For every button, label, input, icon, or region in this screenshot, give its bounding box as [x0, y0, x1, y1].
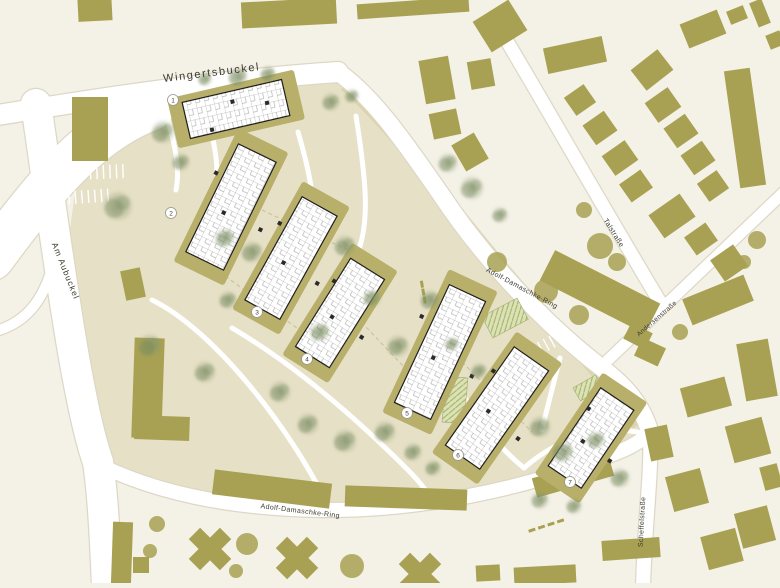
building-number: 3 — [255, 309, 259, 316]
olive-tree-4 — [587, 233, 613, 259]
tree-2 — [150, 119, 176, 145]
existing-building-43 — [111, 522, 133, 583]
existing-building-1 — [77, 0, 112, 22]
tree-26 — [459, 175, 485, 201]
building-badge-3: 3 — [252, 307, 263, 318]
tree-23 — [403, 442, 423, 462]
olive-tree-7 — [149, 516, 165, 532]
building-number: 4 — [305, 356, 309, 363]
building-badge-6: 6 — [453, 450, 464, 461]
existing-building-41 — [514, 564, 577, 583]
tree-7 — [344, 88, 360, 104]
tree-11 — [218, 290, 238, 310]
building-number: 1 — [171, 97, 175, 104]
existing-building-2 — [241, 0, 337, 28]
existing-building-44 — [133, 557, 149, 573]
building-badge-4: 4 — [302, 354, 313, 365]
tree-19 — [419, 289, 441, 311]
olive-tree-3 — [569, 305, 589, 325]
tree-22 — [373, 420, 397, 444]
tree-5 — [259, 65, 277, 83]
building-badge-7: 7 — [565, 477, 576, 488]
building-badge-2: 2 — [166, 208, 177, 219]
tree-30 — [586, 430, 606, 450]
olive-tree-11 — [340, 554, 364, 578]
tree-13 — [193, 360, 217, 384]
tree-18 — [386, 334, 410, 358]
existing-building-49 — [345, 485, 468, 510]
parking-stall — [88, 190, 89, 203]
tree-20 — [296, 412, 320, 436]
tree-35 — [470, 362, 488, 380]
tree-28 — [528, 415, 552, 439]
existing-building-47 — [134, 415, 190, 441]
parking-stall — [101, 189, 102, 202]
olive-tree-9 — [229, 564, 243, 578]
olive-tree-5 — [608, 253, 626, 271]
tree-34 — [444, 336, 460, 352]
building-number: 2 — [169, 210, 173, 217]
existing-building-11 — [467, 58, 495, 90]
parking-stall — [75, 191, 76, 204]
site-plan: WingertsbuckelAm AubuckelAdolf-Damaschke… — [0, 0, 780, 583]
tree-15 — [309, 321, 331, 343]
tree-27 — [491, 206, 509, 224]
tree-17 — [362, 288, 382, 308]
parking-stall — [69, 191, 70, 204]
tree-10 — [240, 240, 264, 264]
existing-building-42 — [476, 564, 501, 581]
existing-building-5 — [72, 97, 108, 161]
building-number: 7 — [568, 479, 572, 486]
olive-tree-6 — [576, 202, 592, 218]
tree-9 — [214, 227, 236, 249]
tree-33 — [565, 497, 583, 515]
site-plan-svg: WingertsbuckelAm AubuckelAdolf-Damaschke… — [0, 0, 780, 583]
olive-tree-13 — [748, 231, 766, 249]
tree-24 — [424, 459, 442, 477]
tree-21 — [332, 428, 358, 454]
olive-tree-14 — [737, 255, 751, 269]
building-number: 5 — [405, 410, 409, 417]
olive-tree-12 — [672, 324, 688, 340]
olive-tree-10 — [236, 533, 258, 555]
building-badge-5: 5 — [402, 408, 413, 419]
building-badge-1: 1 — [168, 95, 179, 106]
tree-32 — [530, 490, 550, 510]
tree-25 — [437, 152, 459, 174]
tree-8 — [171, 152, 191, 172]
tree-16 — [333, 234, 357, 258]
tree-29 — [551, 440, 575, 464]
tree-31 — [609, 467, 631, 489]
parking-stall — [94, 190, 95, 203]
tree-6 — [321, 92, 341, 112]
olive-tree-8 — [143, 544, 157, 558]
tree-1 — [102, 190, 134, 222]
tree-12 — [137, 333, 163, 359]
existing-building-40 — [601, 537, 660, 561]
parking-stall — [62, 192, 63, 205]
tree-14 — [268, 380, 292, 404]
building-number: 6 — [456, 452, 460, 459]
parking-stall — [82, 190, 83, 203]
